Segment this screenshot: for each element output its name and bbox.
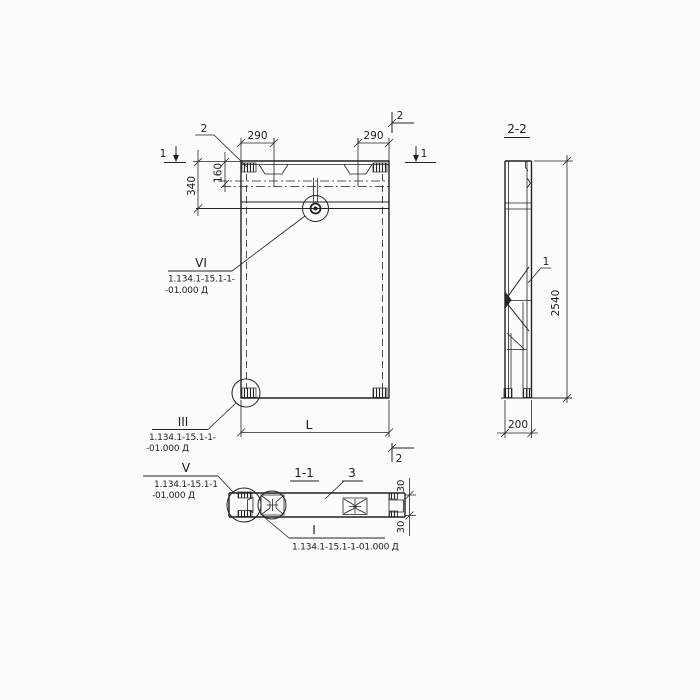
profile-wedge <box>505 292 511 308</box>
dim-340: 340 <box>186 176 198 196</box>
callout-v-label: V <box>182 461 191 475</box>
foot-hatch-right <box>523 389 532 398</box>
anchor-hatch-top-right <box>373 163 387 172</box>
callout-vi-ref2: -01.000 Д <box>165 286 208 296</box>
profile-diagonal-foot <box>507 333 527 350</box>
dim-30-top: 30 <box>396 480 407 493</box>
callout-vi-ref1: 1.134.1-15.1-1- <box>168 275 235 285</box>
arrowhead-down <box>173 155 179 162</box>
bar-hatch-left-bottom <box>238 511 252 517</box>
anchor-hatch-bottom-right <box>373 388 387 398</box>
leader-2-label: 2 <box>201 123 208 135</box>
section-marker-1-left-label: 1 <box>160 148 167 160</box>
callout-v: V 1.134.1-15.1-1 -01.000 Д <box>143 461 233 501</box>
leader-2-line <box>195 135 247 167</box>
dim-200: 200 <box>508 419 528 431</box>
panel-outline <box>241 161 389 398</box>
bar-right-channel <box>389 500 404 512</box>
callout-vi: VI 1.134.1-15.1-1- -01.000 Д <box>165 216 305 296</box>
side-part-label: 1 <box>543 256 550 268</box>
section-marker-1-right-label: 1 <box>421 148 428 160</box>
callout-i-ref: 1.134.1-15.1-1-01.000 Д <box>292 543 399 553</box>
technical-drawing-sheet: 290 290 340 160 L 1 1 2 2 <box>0 0 700 700</box>
callout-v-ref2: -01.000 Д <box>152 491 195 501</box>
plan-part-leader <box>325 481 344 499</box>
side-view-title: 2-2 <box>507 122 527 136</box>
profile-diagonal-upper <box>506 267 529 299</box>
insert-mid-cross <box>349 499 361 514</box>
profile-right-jog <box>527 178 531 188</box>
drawing-svg: 290 290 340 160 L 1 1 2 2 <box>0 0 700 700</box>
callout-iii: III 1.134.1-15.1-1- -01.000 Д <box>146 403 236 454</box>
callout-vi-leader <box>232 216 305 271</box>
dim-2540: 2540 <box>550 290 562 317</box>
profile-diagonal-lower <box>506 302 529 331</box>
dim-L: L <box>306 417 313 432</box>
plan-view-1-1: 1-1 3 30 30 <box>227 466 416 536</box>
side-view-2-2: 2-2 1 2540 200 <box>497 122 573 438</box>
dim-30-bottom: 30 <box>396 521 407 534</box>
profile-partial-verticals <box>511 302 523 388</box>
dim-290-right: 290 <box>363 130 383 142</box>
loop-stem <box>314 178 318 202</box>
callout-iii-ref2: -01.000 Д <box>146 444 189 454</box>
dim-160: 160 <box>213 163 225 183</box>
callout-v-ref1: 1.134.1-15.1-1 <box>154 480 218 490</box>
profile-band <box>505 203 532 209</box>
anchor-hatch-bottom-left <box>242 388 256 398</box>
section-marker-2-bottom-label: 2 <box>396 453 403 465</box>
callout-i-leader <box>264 517 289 538</box>
ext-lines-L <box>241 400 389 437</box>
section-marker-2-top-label: 2 <box>397 110 404 122</box>
dim-290-left: 290 <box>247 130 267 142</box>
bar-hatch-left-top <box>238 492 252 498</box>
profile-outer <box>505 161 532 398</box>
callout-iii-ref1: 1.134.1-15.1-1- <box>149 433 216 443</box>
callout-vi-label: VI <box>195 256 207 270</box>
callout-i-label: I <box>312 523 316 537</box>
callout-i: I 1.134.1-15.1-1-01.000 Д <box>264 517 399 553</box>
loop-center-dot <box>314 207 318 211</box>
foot-hatch-left <box>504 389 512 398</box>
callout-v-leader <box>218 476 233 492</box>
recess-left <box>259 165 288 175</box>
bar-outline <box>229 493 405 517</box>
callout-iii-leader <box>208 403 236 430</box>
bar-hatch-right-top <box>390 493 398 499</box>
callout-iii-label: III <box>178 415 189 429</box>
plan-part-label: 3 <box>348 466 356 480</box>
plan-view-title: 1-1 <box>294 466 314 480</box>
arrowhead-down <box>413 155 419 162</box>
